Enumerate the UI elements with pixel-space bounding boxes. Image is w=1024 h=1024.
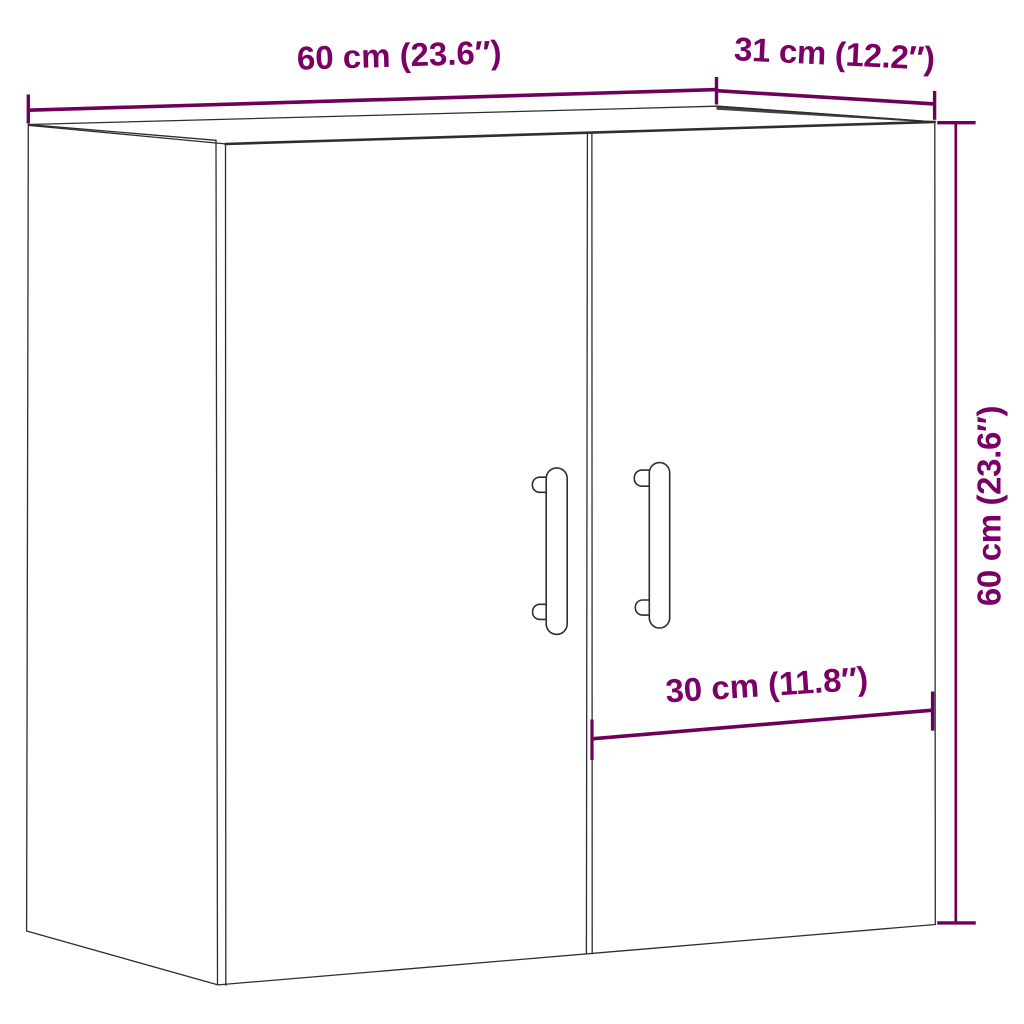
svg-text:60 cm (23.6″): 60 cm (23.6″) bbox=[971, 406, 1008, 606]
svg-text:60 cm (23.6″): 60 cm (23.6″) bbox=[296, 33, 502, 76]
